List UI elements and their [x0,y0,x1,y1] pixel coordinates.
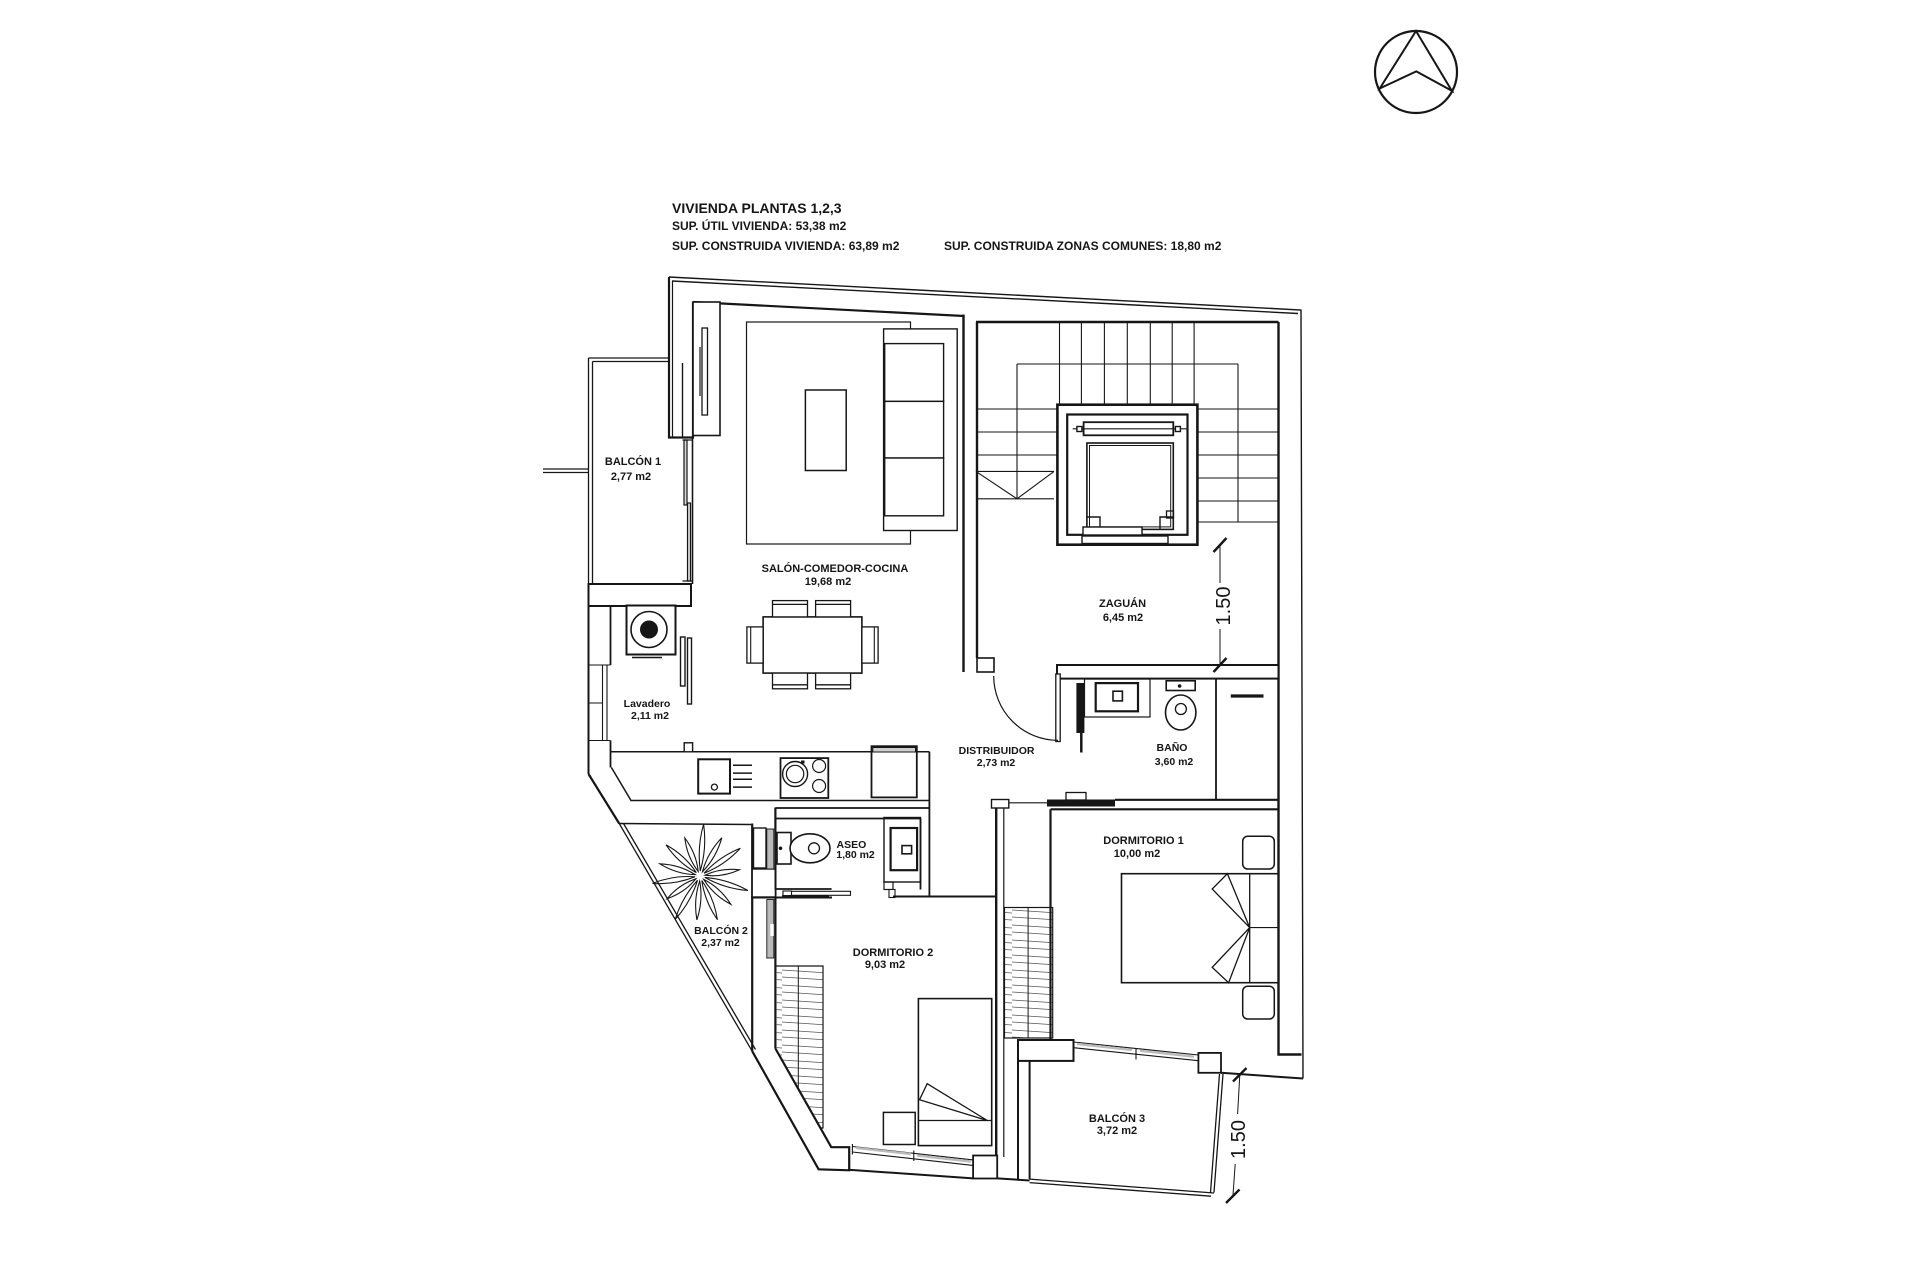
svg-text:1,80 m2: 1,80 m2 [836,849,875,861]
svg-text:3,72 m2: 3,72 m2 [1097,1125,1137,1137]
svg-text:Lavadero: Lavadero [624,698,671,710]
svg-text:2,11 m2: 2,11 m2 [631,710,669,722]
svg-text:ZAGUÁN: ZAGUÁN [1099,597,1146,610]
svg-text:BALCÓN 3: BALCÓN 3 [1089,1112,1145,1125]
svg-text:2,37 m2: 2,37 m2 [701,937,740,949]
svg-text:1.50: 1.50 [1213,587,1235,626]
svg-text:BALCÓN 1: BALCÓN 1 [605,455,661,468]
svg-text:3,60 m2: 3,60 m2 [1155,756,1194,768]
svg-text:DISTRIBUIDOR: DISTRIBUIDOR [959,745,1035,757]
svg-text:BALCÓN 2: BALCÓN 2 [694,924,748,937]
svg-text:BAÑO: BAÑO [1157,741,1188,754]
svg-text:DORMITORIO 1: DORMITORIO 1 [1103,835,1183,847]
svg-text:SUP. ÚTIL VIVIENDA: 53,38 m2: SUP. ÚTIL VIVIENDA: 53,38 m2 [672,218,847,233]
svg-text:SALÓN-COMEDOR-COCINA: SALÓN-COMEDOR-COCINA [762,562,909,575]
svg-text:SUP. CONSTRUIDA VIVIENDA: 63,8: SUP. CONSTRUIDA VIVIENDA: 63,89 m2 [672,239,900,253]
svg-text:19,68 m2: 19,68 m2 [805,576,851,588]
svg-text:10,00 m2: 10,00 m2 [1114,848,1160,860]
svg-text:SUP. CONSTRUIDA ZONAS COMUNES:: SUP. CONSTRUIDA ZONAS COMUNES: 18,80 m2 [944,239,1222,253]
svg-text:DORMITORIO 2: DORMITORIO 2 [853,947,933,959]
svg-text:2,77 m2: 2,77 m2 [611,471,651,483]
svg-text:6,45 m2: 6,45 m2 [1103,612,1143,624]
svg-text:VIVIENDA PLANTAS 1,2,3: VIVIENDA PLANTAS 1,2,3 [672,200,842,216]
svg-text:2,73 m2: 2,73 m2 [977,757,1016,769]
svg-text:1.50: 1.50 [1228,1120,1250,1159]
svg-text:9,03 m2: 9,03 m2 [865,959,905,971]
